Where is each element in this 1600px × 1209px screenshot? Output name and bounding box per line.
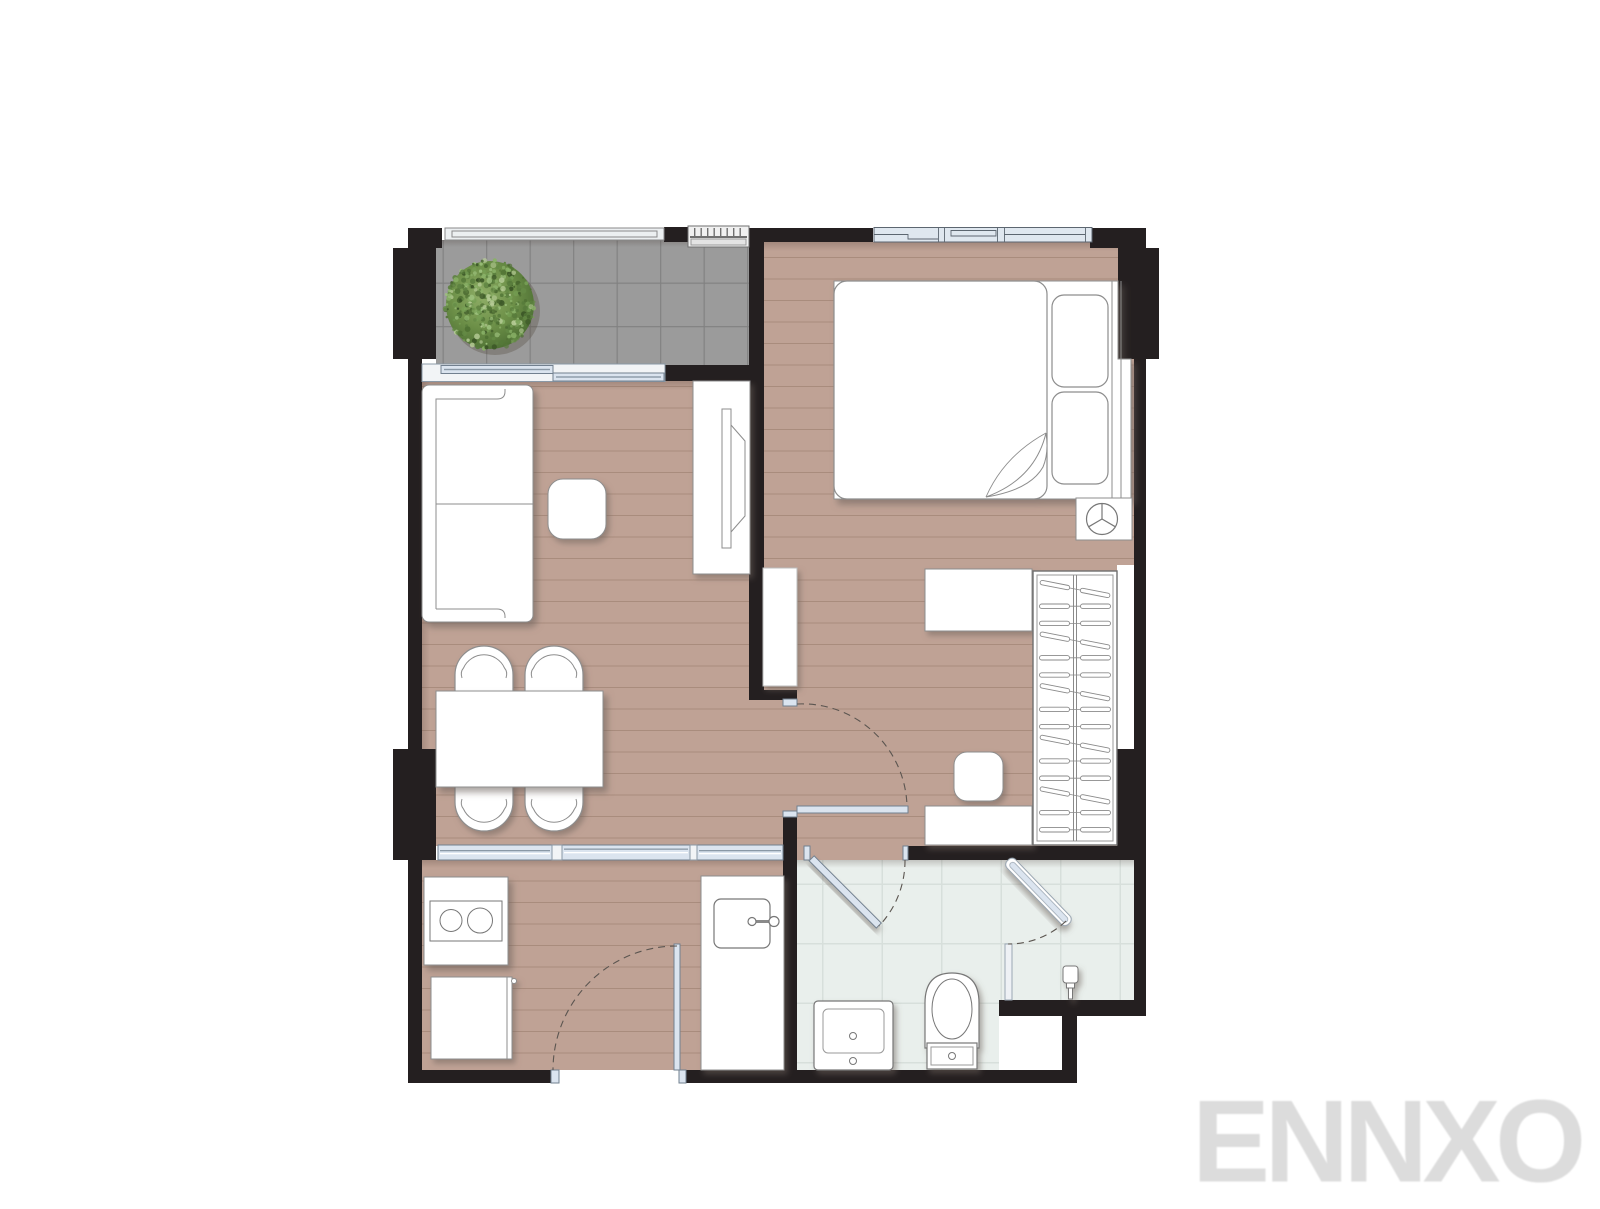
- svg-text:ENNXO: ENNXO: [1192, 1076, 1582, 1205]
